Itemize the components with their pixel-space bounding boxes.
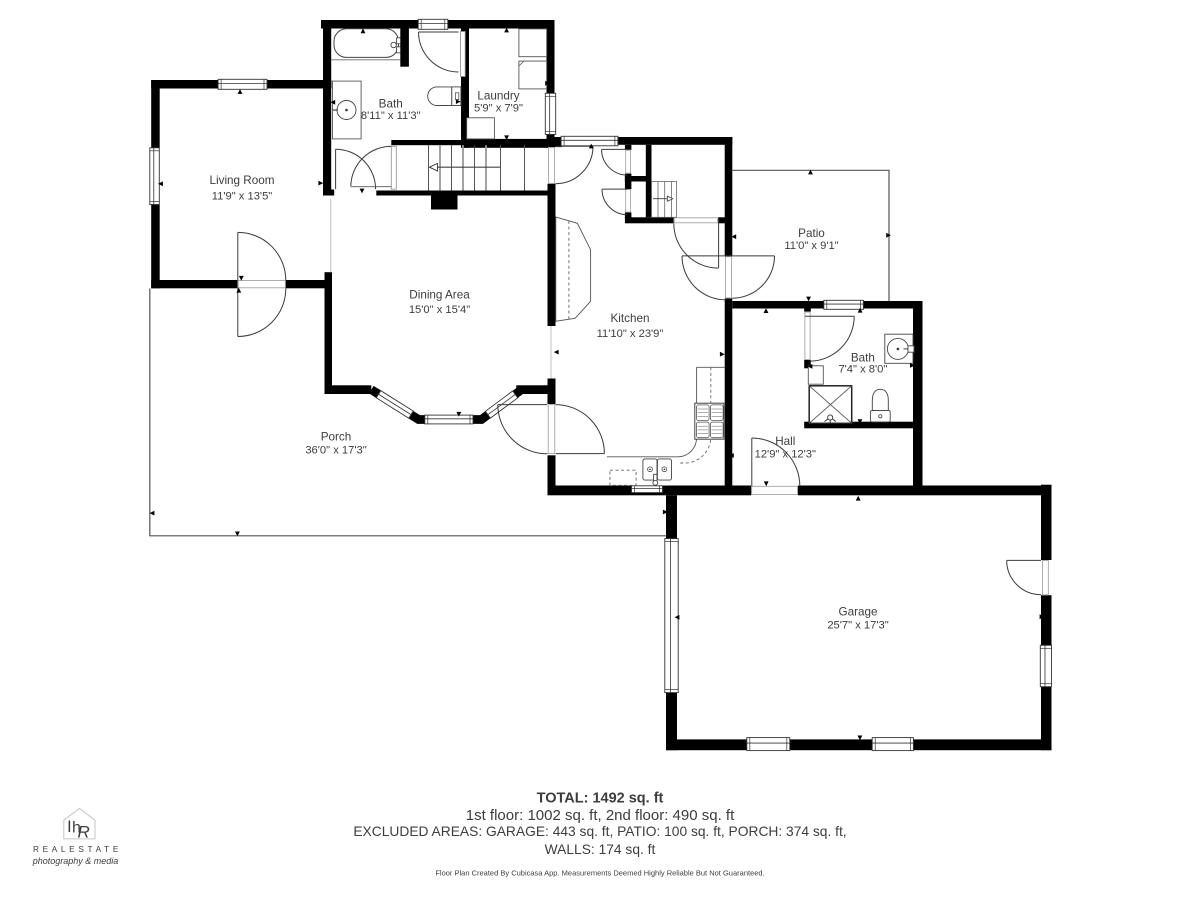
- svg-text:Kitchen: Kitchen: [611, 312, 650, 325]
- svg-text:Bath: Bath: [379, 98, 403, 111]
- svg-text:R: R: [78, 823, 90, 842]
- svg-text:EXCLUDED AREAS: GARAGE: 443 sq: EXCLUDED AREAS: GARAGE: 443 sq. ft, PATI…: [353, 824, 846, 839]
- svg-text:Bath: Bath: [851, 351, 875, 364]
- svg-text:15'0" x 15'4": 15'0" x 15'4": [409, 304, 470, 316]
- svg-text:12'9" x 12'3": 12'9" x 12'3": [755, 449, 816, 461]
- svg-text:Laundry: Laundry: [477, 90, 519, 103]
- svg-text:Porch: Porch: [321, 431, 352, 444]
- svg-text:8'11" x 11'3": 8'11" x 11'3": [361, 110, 421, 122]
- svg-text:1st floor: 1002 sq. ft, 2nd fl: 1st floor: 1002 sq. ft, 2nd floor: 490 s…: [466, 807, 735, 824]
- svg-text:REALESTATE: REALESTATE: [33, 845, 122, 854]
- svg-text:Patio: Patio: [798, 227, 825, 240]
- svg-text:5'9" x 7'9": 5'9" x 7'9": [474, 102, 523, 114]
- svg-text:Hall: Hall: [775, 435, 795, 448]
- svg-text:36'0" x 17'3": 36'0" x 17'3": [305, 445, 366, 457]
- svg-text:TOTAL: 1492 sq. ft: TOTAL: 1492 sq. ft: [537, 791, 664, 807]
- svg-text:11'0" x 9'1": 11'0" x 9'1": [784, 240, 838, 252]
- svg-text:Floor Plan Created By Cubicasa: Floor Plan Created By Cubicasa App. Meas…: [435, 869, 764, 878]
- svg-text:25'7" x 17'3": 25'7" x 17'3": [827, 620, 888, 632]
- svg-text:photography & media: photography & media: [32, 856, 119, 866]
- svg-text:Dining Area: Dining Area: [409, 289, 470, 302]
- svg-text:Garage: Garage: [839, 606, 878, 619]
- svg-text:11'10" x 23'9": 11'10" x 23'9": [597, 328, 664, 340]
- svg-text:7'4" x 8'0": 7'4" x 8'0": [838, 364, 887, 376]
- svg-text:11'9" x 13'5": 11'9" x 13'5": [212, 191, 273, 203]
- svg-text:WALLS: 174 sq. ft: WALLS: 174 sq. ft: [545, 842, 656, 857]
- svg-text:Living Room: Living Room: [210, 174, 275, 187]
